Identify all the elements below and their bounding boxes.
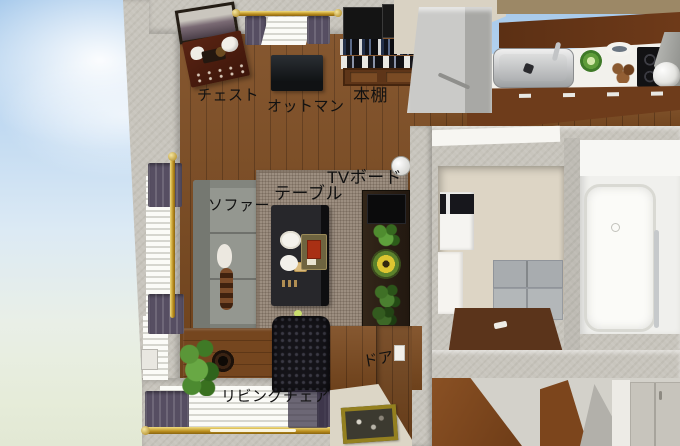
- west-curtain-rod[interactable]: [170, 158, 175, 318]
- label-sofa: ソファー: [208, 198, 270, 213]
- rod-finial: [141, 426, 150, 435]
- floorplan-3d-render: チェスト オットマン 本棚 TVボード テーブル ソファー ドア リビングチェア: [0, 0, 680, 446]
- label-ottoman: オットマン: [267, 99, 345, 114]
- refrigerator[interactable]: [407, 7, 492, 113]
- rod-finial: [168, 152, 177, 161]
- door-mat[interactable]: [341, 404, 398, 444]
- bathroom-wall: [580, 140, 680, 176]
- light-switch[interactable]: [394, 345, 405, 361]
- bento-box: [307, 240, 321, 259]
- low-table[interactable]: [271, 205, 329, 306]
- towel-rail: [654, 230, 659, 328]
- white-cushion: [217, 244, 232, 268]
- washing-machine-panel: [440, 194, 474, 214]
- wall-pillar: [612, 380, 630, 446]
- washing-machine[interactable]: [440, 192, 474, 250]
- bathtub[interactable]: [584, 184, 656, 332]
- west-curtain-bottom[interactable]: [148, 294, 184, 334]
- lettuce[interactable]: [580, 50, 602, 72]
- tub-drain-knob: [611, 223, 620, 232]
- label-table: テーブル: [274, 185, 343, 202]
- hallway-wall: [428, 350, 680, 380]
- tv-board[interactable]: [362, 190, 410, 330]
- fridge-handle: [438, 72, 471, 89]
- towel: [494, 321, 508, 330]
- bookshelf-drawers: [343, 68, 420, 86]
- sunflower: [371, 249, 401, 279]
- washroom: [438, 166, 564, 314]
- cabinet-handles: [475, 91, 675, 98]
- kitchen-sink[interactable]: [493, 48, 574, 88]
- plate: [280, 231, 301, 249]
- chopsticks: [282, 280, 300, 287]
- ottoman[interactable]: [271, 55, 323, 91]
- plant-on-tv-board: [371, 307, 397, 325]
- sofa-armrest: [210, 180, 257, 188]
- north-curtain-right[interactable]: [307, 16, 330, 44]
- bathroom-vanity[interactable]: [438, 252, 463, 314]
- living-room-east-wall: [410, 126, 432, 446]
- washroom-bathroom-wall: [564, 138, 580, 356]
- striped-cat: [220, 268, 233, 310]
- rod-finial: [232, 9, 240, 17]
- potted-plant[interactable]: [175, 338, 223, 396]
- food-tray: [301, 234, 327, 270]
- west-curtain-top[interactable]: [148, 163, 182, 207]
- label-living-chair: リビングチェア: [221, 389, 330, 404]
- fish-plate[interactable]: [606, 42, 633, 56]
- label-chest: チェスト: [197, 88, 259, 103]
- cabinet-upper-row: [493, 260, 563, 288]
- label-bookshelf: 本棚: [353, 87, 388, 104]
- hallway-door[interactable]: [540, 380, 588, 446]
- plant-on-tv-board: [371, 223, 401, 247]
- fish: [612, 46, 627, 52]
- hallway: [428, 378, 680, 446]
- drawer-panel: [386, 72, 413, 82]
- mushrooms[interactable]: [610, 61, 636, 83]
- wall-outlet: [141, 349, 158, 370]
- bathroom: [580, 140, 680, 334]
- north-window-blinds[interactable]: [261, 17, 313, 45]
- plant-on-tv-board: [373, 283, 401, 309]
- kettle[interactable]: [653, 62, 680, 87]
- flat-tv: [367, 194, 406, 224]
- washroom-floor: [448, 308, 564, 356]
- living-chair[interactable]: [272, 316, 330, 392]
- closet-handle: [659, 391, 662, 400]
- storage-closet-doors[interactable]: [630, 382, 680, 446]
- kitchen-back-wall: [497, 0, 680, 14]
- drawer-panel: [350, 72, 377, 82]
- hallway-door[interactable]: [430, 378, 522, 446]
- napkin: [307, 259, 316, 265]
- rod-highlight: [210, 429, 296, 432]
- plate: [280, 255, 298, 271]
- bookshelf-top-panel: [343, 7, 383, 40]
